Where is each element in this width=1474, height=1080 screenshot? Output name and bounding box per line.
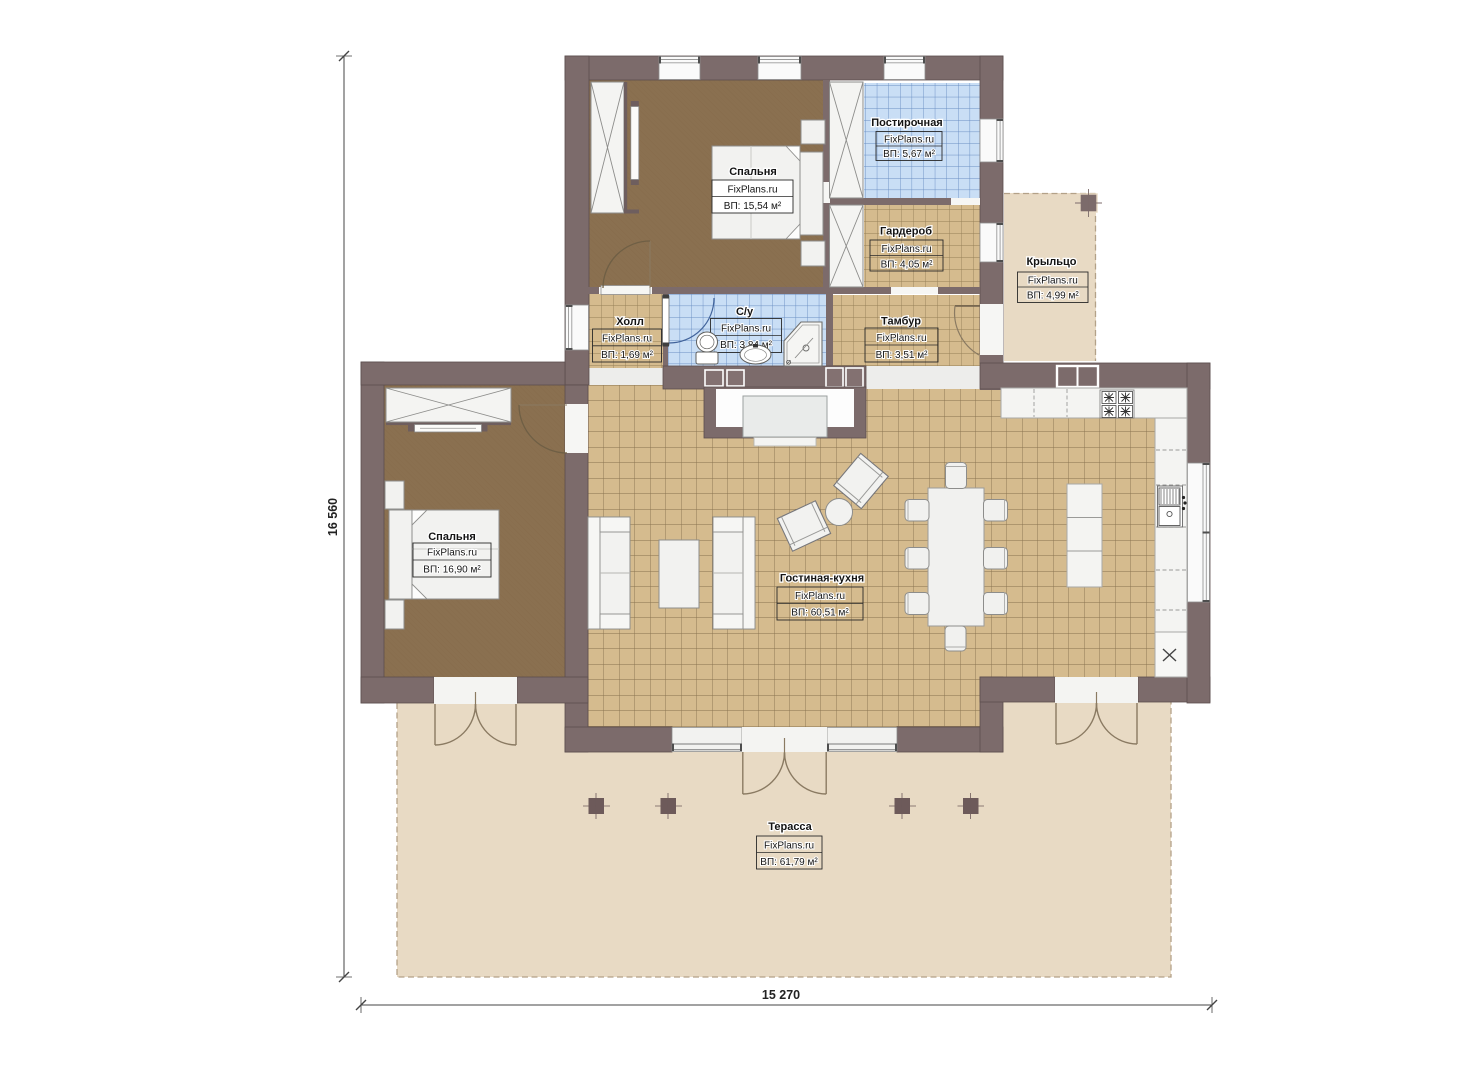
svg-text:FixPlans.ru: FixPlans.ru [721,324,771,335]
svg-text:ВП: 4,99 м²: ВП: 4,99 м² [1027,291,1080,302]
svg-text:ВП: 60,51 м²: ВП: 60,51 м² [791,608,849,619]
svg-text:FixPlans.ru: FixPlans.ru [884,135,934,146]
svg-text:FixPlans.ru: FixPlans.ru [727,185,777,196]
svg-text:ВП: 16,90 м²: ВП: 16,90 м² [423,565,481,576]
svg-text:FixPlans.ru: FixPlans.ru [795,591,845,602]
svg-text:ВП: 4,05 м²: ВП: 4,05 м² [881,260,934,271]
svg-text:Ø: Ø [786,360,791,367]
svg-text:Гардероб: Гардероб [880,226,932,238]
svg-text:FixPlans.ru: FixPlans.ru [881,244,931,255]
svg-text:ВП: 1,69 м²: ВП: 1,69 м² [601,350,654,361]
svg-text:ВП: 5,67 м²: ВП: 5,67 м² [883,149,936,160]
svg-text:ВП: 3,51 м²: ВП: 3,51 м² [876,350,929,361]
svg-text:FixPlans.ru: FixPlans.ru [1028,276,1078,287]
svg-text:Тамбур: Тамбур [881,316,921,328]
svg-text:ВП: 61,79 м²: ВП: 61,79 м² [760,857,818,868]
svg-text:16 560: 16 560 [326,498,340,536]
svg-text:Холл: Холл [616,316,644,328]
svg-text:Постирочная: Постирочная [871,117,942,129]
svg-text:15 270: 15 270 [762,988,800,1002]
svg-text:Крыльцо: Крыльцо [1026,256,1076,268]
svg-text:Спальня: Спальня [729,166,777,178]
svg-text:Терасса: Терасса [768,821,812,833]
svg-text:Гостиная-кухня: Гостиная-кухня [780,573,864,585]
svg-text:FixPlans.ru: FixPlans.ru [876,333,926,344]
svg-text:FixPlans.ru: FixPlans.ru [602,334,652,345]
svg-text:С/у: С/у [736,306,754,318]
svg-text:Спальня: Спальня [428,531,476,543]
svg-text:FixPlans.ru: FixPlans.ru [764,841,814,852]
svg-text:FixPlans.ru: FixPlans.ru [427,548,477,559]
svg-text:ВП: 15,54 м²: ВП: 15,54 м² [724,201,782,212]
